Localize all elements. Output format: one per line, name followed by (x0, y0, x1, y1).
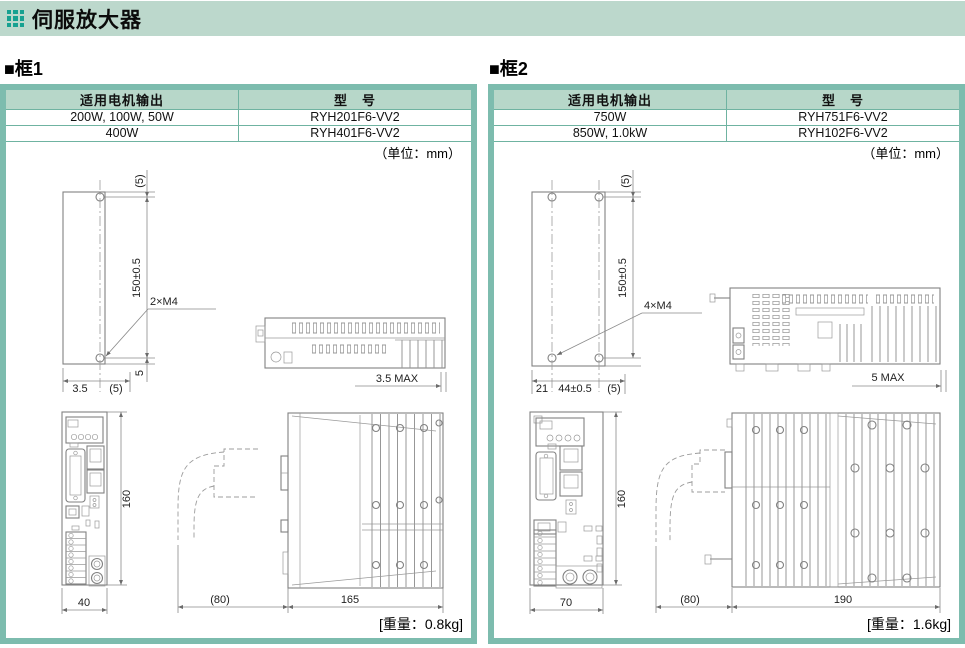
page-title-bar: 伺服放大器 (0, 1, 965, 36)
weight-note: [重量：0.8kg] (379, 614, 463, 634)
table-header-row: 适用电机输出 型 号 (6, 90, 471, 110)
table-row: 850W, 1.0kW RYH102F6-VV2 (494, 126, 959, 142)
grid-dots-icon (7, 10, 24, 27)
table-row: 400W RYH401F6-VV2 (6, 126, 471, 142)
frame2-spec-table: 适用电机输出 型 号 750W RYH751F6-VV2 850W, 1.0kW… (494, 90, 959, 142)
unit-note: （单位：mm） (862, 143, 949, 162)
frame1-spec-table: 适用电机输出 型 号 200W, 100W, 50W RYH201F6-VV2 … (6, 90, 471, 142)
col-header-motor-output: 适用电机输出 (6, 90, 239, 110)
cell-motor-output: 750W (494, 110, 727, 126)
section-heading-frame1: ■框1 (4, 55, 43, 81)
section-heading-frame2: ■框2 (489, 55, 528, 81)
page-title: 伺服放大器 (32, 4, 142, 34)
unit-note: （单位：mm） (374, 143, 461, 162)
col-header-model: 型 号 (239, 90, 472, 110)
col-header-model: 型 号 (727, 90, 960, 110)
frame1-panel: 适用电机输出 型 号 200W, 100W, 50W RYH201F6-VV2 … (0, 84, 477, 644)
table-row: 750W RYH751F6-VV2 (494, 110, 959, 126)
cell-model: RYH751F6-VV2 (727, 110, 960, 126)
cell-motor-output: 400W (6, 126, 239, 142)
weight-note: [重量：1.6kg] (867, 614, 951, 634)
frame2-panel: 适用电机输出 型 号 750W RYH751F6-VV2 850W, 1.0kW… (488, 84, 965, 644)
cell-model: RYH401F6-VV2 (239, 126, 472, 142)
table-header-row: 适用电机输出 型 号 (494, 90, 959, 110)
cell-model: RYH201F6-VV2 (239, 110, 472, 126)
cell-motor-output: 200W, 100W, 50W (6, 110, 239, 126)
cell-motor-output: 850W, 1.0kW (494, 126, 727, 142)
table-row: 200W, 100W, 50W RYH201F6-VV2 (6, 110, 471, 126)
cell-model: RYH102F6-VV2 (727, 126, 960, 142)
col-header-motor-output: 适用电机输出 (494, 90, 727, 110)
